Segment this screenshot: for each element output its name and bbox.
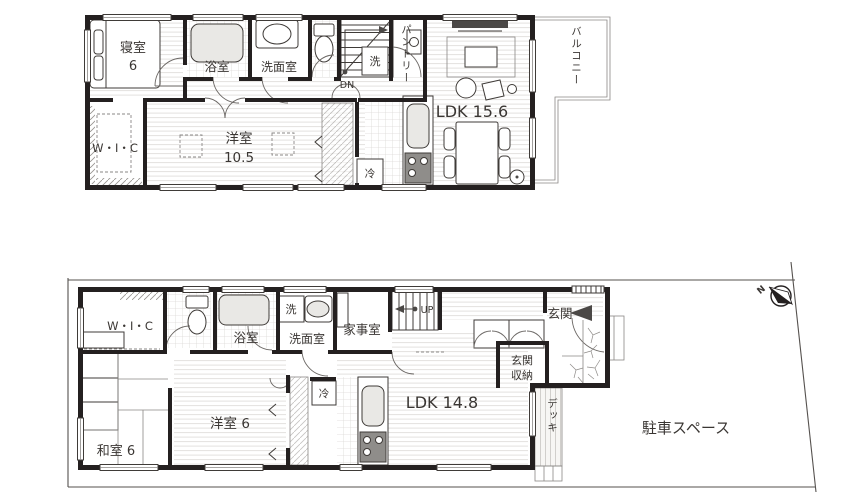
kitchen-floor-1f: [337, 377, 358, 465]
wic-1f-shelf-hatch: [120, 291, 165, 300]
entrance-stone-floor: [562, 320, 600, 385]
kitchen-counter-2f-icon: [403, 96, 433, 185]
washroom-label-1f: 洗面室: [289, 331, 325, 346]
floorplan-svg: 寝室 6 浴室 洗面室 パントリー 洗 DN LDK 15.6 バルコニー W・…: [0, 0, 850, 500]
north-label: N: [756, 284, 768, 297]
stool-icon: [510, 170, 524, 184]
floorplan-canvas: 寝室 6 浴室 洗面室 パントリー 洗 DN LDK 15.6 バルコニー W・…: [0, 0, 850, 500]
japanese-room-label: 和室 6: [97, 443, 135, 459]
toilet-2f-icon: [314, 24, 334, 62]
bathtub-1f-icon: [219, 295, 269, 325]
fridge-label-1f: 冷: [319, 387, 330, 400]
vanity-sink-2f-icon: [256, 20, 298, 48]
ldk-label-1f: LDK 14.8: [406, 393, 478, 412]
floor2-plan: 寝室 6 浴室 洗面室 パントリー 洗 DN LDK 15.6 バルコニー W・…: [85, 15, 611, 191]
bedroom-label: 寝室: [120, 40, 146, 56]
entrance-label: 玄関: [547, 306, 572, 321]
entrance-door-arc: [572, 318, 604, 352]
fridge-label-2f: 冷: [365, 167, 376, 180]
vanity-sink-1f-icon: [305, 296, 332, 322]
washer-label-2f: 洗: [370, 55, 381, 68]
balcony-label: バルコニー: [570, 26, 582, 86]
washroom-door-arc-1f: [302, 350, 328, 376]
western-room-floor-1f: [174, 357, 286, 465]
parking-label: 駐車スペース: [642, 419, 730, 437]
bath-label-2f: 浴室: [204, 59, 229, 74]
entrance-storage-label-2: 収納: [511, 369, 533, 382]
western-room-label-2f: 洋室: [226, 130, 253, 147]
bathtub-2f-icon: [191, 24, 243, 62]
entrance-louver-window: [572, 286, 604, 293]
compass-icon: N: [756, 284, 792, 306]
washer-label-1f: 洗: [286, 303, 297, 316]
ldk-label-2f: LDK 15.6: [436, 102, 508, 121]
toilet-1f-icon: [186, 296, 208, 334]
stairs-up-label: UP: [421, 305, 434, 316]
wic-label-2f: W・I・C: [92, 141, 138, 155]
washroom-label-2f: 洗面室: [261, 59, 297, 74]
stairs-down-label: DN: [340, 80, 354, 91]
japanese-room-closet: [80, 353, 118, 430]
western-room-size-2f: 10.5: [224, 150, 254, 166]
bedroom-size-label: 6: [129, 59, 137, 74]
deck-label: デッキ: [546, 397, 558, 434]
western-room-label-1f: 洋室 6: [210, 415, 250, 432]
kitchen-counter-1f-icon: [358, 377, 388, 465]
entrance-porch-step: [609, 316, 624, 360]
wic-label-1f: W・I・C: [107, 319, 153, 333]
entrance-storage-label-1: 玄関: [511, 353, 533, 367]
pantry-label: パントリー: [400, 24, 412, 84]
bath-label-1f: 浴室: [233, 330, 258, 345]
utility-room-label: 家事室: [343, 322, 381, 337]
floor1-plan: W・I・C 浴室 洗 洗面室 家事室 UP 玄関 玄関 収納 和室 6 洋室 6…: [78, 286, 625, 481]
